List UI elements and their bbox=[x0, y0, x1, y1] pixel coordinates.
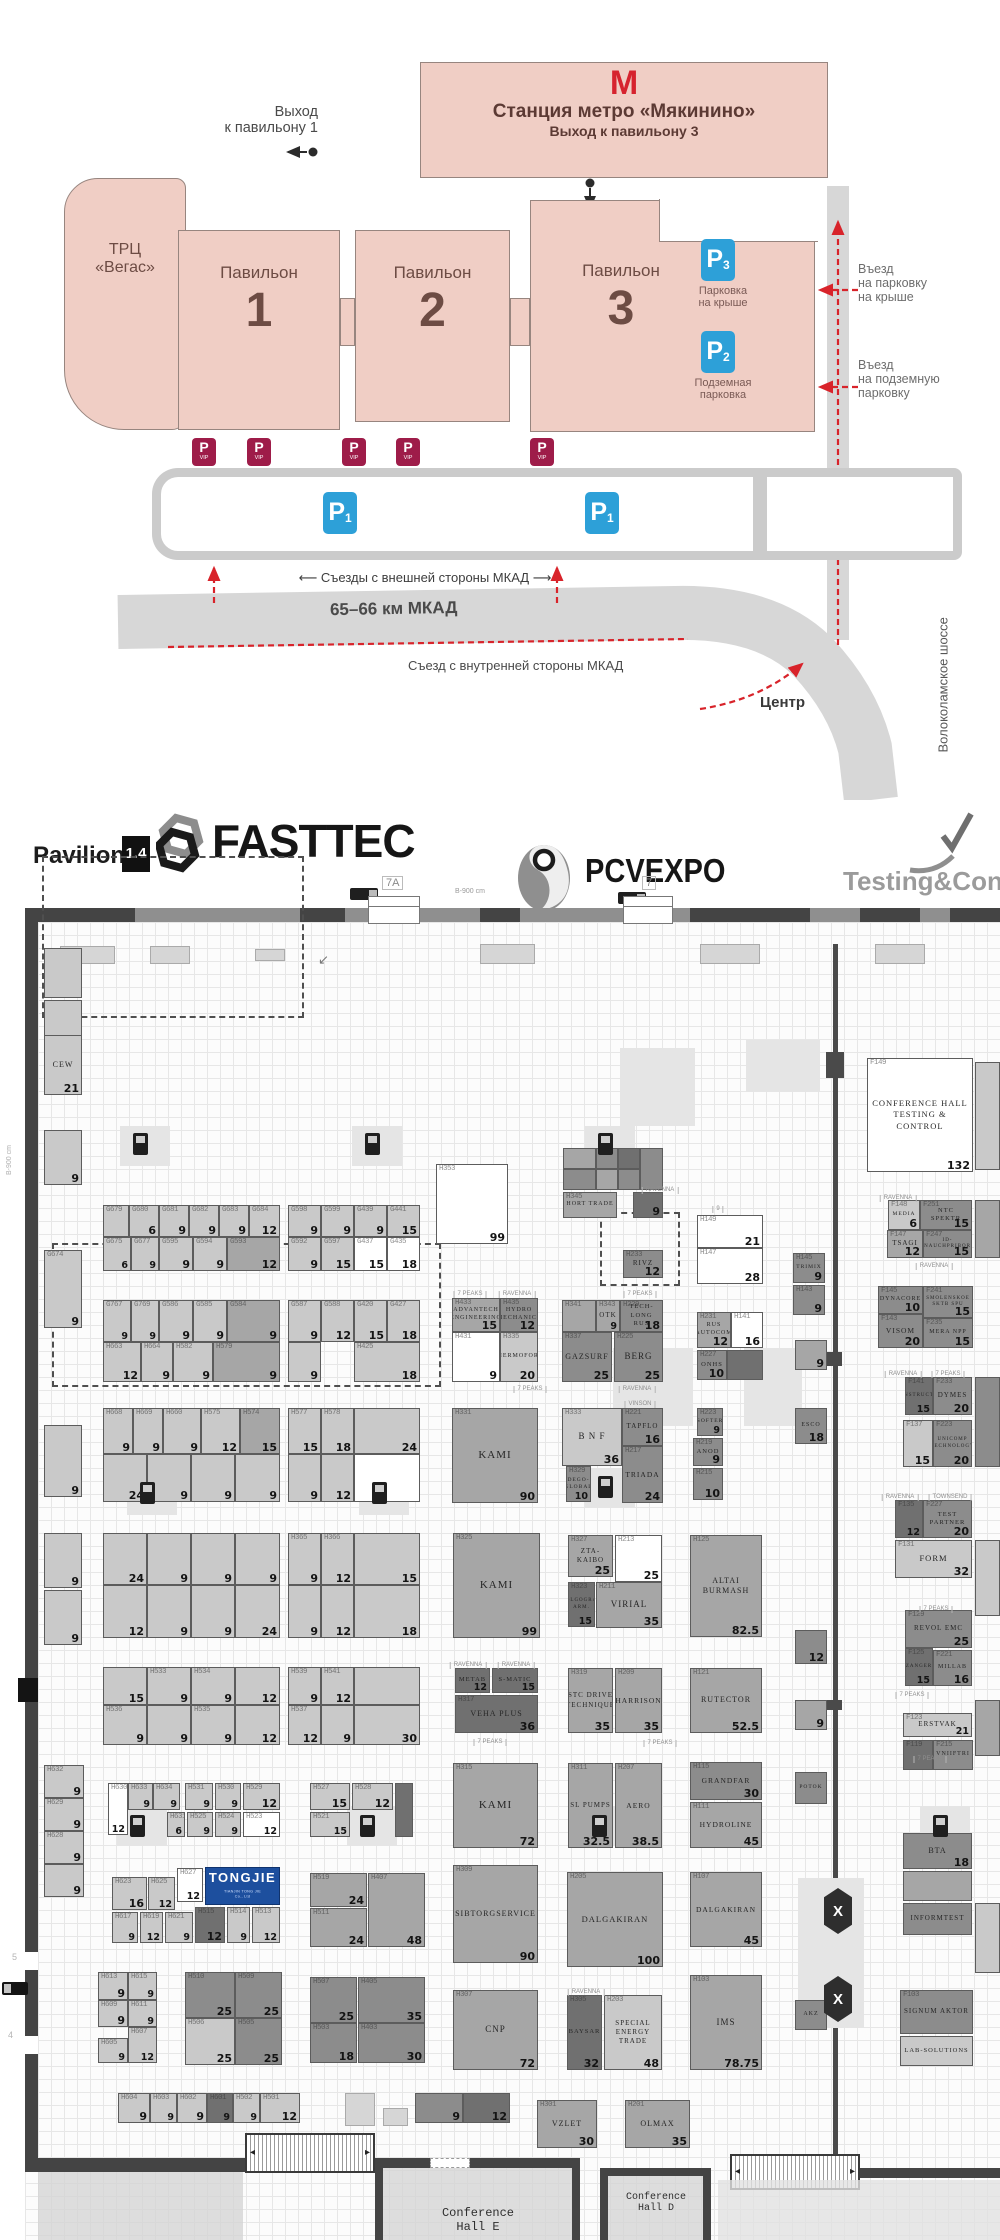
forklift-icon bbox=[598, 1476, 613, 1498]
booth-H103: H103IMS78.75 bbox=[690, 1975, 762, 2070]
booth-F143: F143VISOM20 bbox=[878, 1314, 923, 1348]
booth-G769: G7699 bbox=[131, 1300, 159, 1342]
booth-H141: H14116 bbox=[731, 1312, 763, 1348]
booth: 9 bbox=[321, 1705, 354, 1745]
forklift-icon bbox=[372, 1482, 387, 1504]
booth: METAB12 bbox=[455, 1668, 490, 1693]
booth-H223: H223SOFTER9 bbox=[697, 1408, 723, 1436]
forklift-icon bbox=[360, 1815, 375, 1837]
booth-H365: H3659 bbox=[288, 1533, 321, 1585]
booth: 9 bbox=[415, 2093, 463, 2123]
booth: 9 bbox=[44, 1533, 82, 1588]
booth-H143: H1439 bbox=[793, 1285, 825, 1315]
booth-H533: H5339 bbox=[147, 1667, 191, 1705]
booth bbox=[618, 1169, 640, 1190]
aisle-label: RAVENNA bbox=[499, 1291, 536, 1298]
booth-G420: G42015 bbox=[354, 1300, 387, 1342]
booth-H530: H5309 bbox=[215, 1783, 241, 1810]
booth-G684: G68412 bbox=[249, 1205, 280, 1237]
booth-G441: G44115 bbox=[387, 1205, 420, 1237]
aisle-label: RAVENNA bbox=[498, 1662, 535, 1669]
booth-H519: H51924 bbox=[310, 1873, 367, 1907]
booth-H615: H6159 bbox=[128, 1972, 157, 2000]
booth: 9 bbox=[147, 1585, 191, 1638]
booth: 9 bbox=[795, 1700, 827, 1730]
booth: ESCO18 bbox=[795, 1408, 827, 1444]
booth-H537: H53712 bbox=[288, 1705, 321, 1745]
booth-H578: H57818 bbox=[321, 1408, 354, 1454]
booth bbox=[903, 1871, 972, 1901]
deco-block bbox=[345, 2093, 375, 2126]
booth: LAB-SOLUTIONS bbox=[900, 2036, 973, 2066]
booth-H323: H323VOLGOGRAD ARM.15 bbox=[568, 1582, 595, 1627]
booth-H337: H337GAZSURF25 bbox=[562, 1332, 612, 1382]
deco-block bbox=[255, 949, 285, 961]
deco-block bbox=[150, 946, 190, 964]
booth-H529: H52912 bbox=[243, 1783, 280, 1810]
booth-G584: G5849 bbox=[227, 1300, 280, 1342]
booth: 9 bbox=[795, 1340, 827, 1370]
booth-H669: H6699 bbox=[133, 1408, 163, 1454]
booth-H229: H229TECH-LONG RUS18 bbox=[620, 1300, 663, 1332]
booth-H621: H6219 bbox=[165, 1912, 193, 1943]
booth bbox=[975, 1377, 1000, 1467]
booth bbox=[727, 1350, 763, 1380]
booth-H575: H57512 bbox=[201, 1408, 240, 1454]
booth-H149: H14921 bbox=[697, 1215, 763, 1248]
booth-F235: F235MERA NPP15 bbox=[923, 1318, 973, 1348]
booth-H213: H21325 bbox=[615, 1535, 662, 1582]
booth-H307: H307CNP72 bbox=[453, 1990, 538, 2070]
booth-H539: H5399 bbox=[288, 1667, 321, 1705]
booth-H107: H107DALGAKIRAN45 bbox=[690, 1872, 762, 1947]
booth-F221: F221MILLAB16 bbox=[933, 1650, 972, 1686]
forklift-icon bbox=[140, 1482, 155, 1504]
aisle-label: RAVENNA bbox=[916, 1263, 953, 1270]
booth-H629: H6299 bbox=[44, 1798, 84, 1831]
booth-H601: H6019 bbox=[207, 2093, 233, 2123]
booth: 9 bbox=[235, 1533, 280, 1585]
booth-H435: H435HYDRO MECHANICS12 bbox=[500, 1298, 538, 1332]
booth bbox=[596, 1169, 618, 1190]
booth-H633: H6339 bbox=[128, 1783, 153, 1810]
booth-H207: H207AERO38.5 bbox=[615, 1763, 662, 1848]
booth: BTA18 bbox=[903, 1833, 972, 1869]
booth-H506: H50625 bbox=[185, 2018, 235, 2065]
booth-G767: G7679 bbox=[103, 1300, 131, 1342]
booth: 12 bbox=[235, 1705, 280, 1745]
booth-H609: H6099 bbox=[98, 2000, 128, 2027]
booth-H231: H231RUS AUTOCOM12 bbox=[697, 1312, 731, 1348]
booth-H301: H301VZLET30 bbox=[537, 2100, 597, 2148]
booth-F148: F148MEDIA6 bbox=[888, 1200, 920, 1230]
booth-H579: H5799 bbox=[213, 1342, 280, 1382]
booth-G594: G5949 bbox=[193, 1237, 227, 1271]
booth-H325: H325KAMI99 bbox=[453, 1533, 540, 1638]
booth-G597: G59715 bbox=[321, 1237, 354, 1271]
booth bbox=[975, 1700, 1000, 1756]
booth-H403: H40330 bbox=[358, 2023, 425, 2063]
booth-F135: F13512 bbox=[895, 1500, 923, 1538]
booth: 15 bbox=[103, 1667, 147, 1705]
booth-H660: H6609 bbox=[163, 1408, 201, 1454]
booth-G593: G59312 bbox=[227, 1237, 280, 1271]
booth-H203: H203SPECIAL ENERGY TRADE48 bbox=[604, 1995, 662, 2070]
booth: 9 bbox=[191, 1585, 235, 1638]
booth-H524: H5249 bbox=[215, 1812, 241, 1837]
booth-H607: H60712 bbox=[128, 2027, 157, 2063]
forklift-icon bbox=[933, 1815, 948, 1837]
booths-layer: H35399H345HORT TRADE9H433ADVANTECH ENGIN… bbox=[0, 0, 1000, 2240]
booth-H577: H57715 bbox=[288, 1408, 321, 1454]
booth-F223: F223UNICOMP TECHNOLOGY20 bbox=[933, 1420, 972, 1467]
booth-G586: G5869 bbox=[159, 1300, 193, 1342]
booth-F119: F119 bbox=[903, 1740, 933, 1770]
booth: 12 bbox=[321, 1454, 354, 1502]
booth-H630: H63012 bbox=[108, 1783, 128, 1835]
booth-H233: H233RIVZ12 bbox=[623, 1250, 663, 1278]
booth-H115: H115GRANDFAR30 bbox=[690, 1762, 762, 1800]
booth: 12 bbox=[321, 1585, 354, 1638]
booth-G677: G6779 bbox=[131, 1237, 159, 1271]
booth bbox=[354, 1667, 420, 1705]
aisle-label: RAVENNA bbox=[450, 1662, 487, 1669]
booth-H611: H6119 bbox=[128, 2000, 157, 2027]
aisle-label: RAVENNA bbox=[885, 1371, 922, 1378]
booth-H663: H66312 bbox=[103, 1342, 141, 1382]
booth-H305: H305BAYSAR32 bbox=[567, 1995, 602, 2070]
forklift-icon bbox=[130, 1815, 145, 1837]
booth-G439: G4399 bbox=[354, 1205, 387, 1237]
booth-H503: H50318 bbox=[310, 2023, 357, 2063]
booth-F147: F147TSAGI12 bbox=[887, 1230, 923, 1258]
booth-H521: H52115 bbox=[310, 1812, 350, 1837]
booth-H509: H50925 bbox=[235, 1972, 282, 2018]
aisle-label: VINSON bbox=[624, 1401, 655, 1408]
booth-H604: H6049 bbox=[118, 2093, 150, 2123]
booth: 12 bbox=[463, 2093, 510, 2123]
booth: 30 bbox=[354, 1705, 420, 1745]
booth: INFORMTEST bbox=[903, 1903, 972, 1935]
booth: 12 bbox=[103, 1585, 147, 1638]
forklift-icon bbox=[133, 1133, 148, 1155]
booth-H627: H62712 bbox=[177, 1868, 203, 1902]
booth-H335: H335THERMOFORM20 bbox=[500, 1332, 538, 1382]
booth: 9 bbox=[235, 1454, 280, 1502]
booth-H514: H5149 bbox=[227, 1907, 250, 1943]
booth: S-MATIC15 bbox=[492, 1668, 538, 1693]
booth-G674: G6749 bbox=[44, 1250, 82, 1328]
booth-H407: H40748 bbox=[368, 1873, 425, 1947]
booth-H505: H50525 bbox=[235, 2018, 282, 2065]
aisle-label: 7 PEAKS bbox=[473, 1739, 506, 1746]
booth-F149: F149CONFERENCE HALL TESTING & CONTROL132 bbox=[867, 1058, 973, 1172]
booth: TONGJIETIANJIN TONG JIE Co., Ltd bbox=[205, 1867, 280, 1905]
booth-F103: F103SIGNUM AKTOR bbox=[900, 1990, 973, 2034]
booth-F125: F125ZANGER15 bbox=[905, 1648, 933, 1686]
booth-H345: H345HORT TRADE bbox=[563, 1192, 617, 1218]
booth: CEW21 bbox=[44, 1035, 82, 1095]
aisle-label: TOWNSEND bbox=[929, 1494, 972, 1501]
booth bbox=[563, 1148, 596, 1169]
booth-H217: H217TRIADA24 bbox=[622, 1446, 663, 1503]
booth-H331: H331KAMI90 bbox=[452, 1408, 538, 1503]
booth-H510: H51025 bbox=[185, 1972, 235, 2018]
booth-H366: H36612 bbox=[321, 1533, 354, 1585]
booth-H603: H6039 bbox=[150, 2093, 177, 2123]
booth-H531: H5319 bbox=[185, 1783, 213, 1810]
booth-H317: H317VEHA PLUS36 bbox=[455, 1695, 538, 1733]
escalator-icon: X bbox=[824, 1888, 852, 1934]
booth-G682: G6829 bbox=[189, 1205, 219, 1237]
booth-H602: H6029 bbox=[177, 2093, 207, 2123]
booth: 9 bbox=[191, 1454, 235, 1502]
booth-H574: H57415 bbox=[240, 1408, 280, 1454]
booth-H525: H5259 bbox=[187, 1812, 213, 1837]
booth-H507: H50725 bbox=[310, 1977, 357, 2023]
booth-H632: H6329 bbox=[44, 1765, 84, 1798]
booth-H201: H201OLMAX35 bbox=[625, 2100, 690, 2148]
booth-G595: G5959 bbox=[159, 1237, 193, 1271]
aisle-label: RAVENNA bbox=[642, 1187, 679, 1194]
booth-H225: H225BERG25 bbox=[614, 1332, 663, 1382]
booth-H319: H319STC DRIVE TECHNIQUE35 bbox=[568, 1668, 613, 1733]
aisle-label: 7 PEAKS bbox=[453, 1291, 486, 1298]
aisle-label: 7 PEAKS bbox=[913, 1756, 946, 1763]
booth: POTOK bbox=[795, 1772, 827, 1804]
booth-H664: H6649 bbox=[141, 1342, 173, 1382]
booth-H527: H52715 bbox=[310, 1783, 350, 1810]
booth bbox=[618, 1148, 640, 1169]
booth-H353: H35399 bbox=[436, 1164, 508, 1244]
booth-H511: H51124 bbox=[310, 1908, 367, 1947]
booth-H343: H343OTK9 bbox=[596, 1300, 620, 1332]
booth-H329: H329DEGO-GLOBAL10 bbox=[566, 1466, 591, 1502]
aisle-label: RAVENNA bbox=[568, 1989, 605, 1996]
forklift-icon bbox=[365, 1133, 380, 1155]
booth-F227: F227TEST PARTNER20 bbox=[923, 1500, 972, 1538]
booth-H147: H14728 bbox=[697, 1248, 763, 1284]
booth-H121: H121RUTECTOR52.5 bbox=[690, 1668, 762, 1733]
booth-H333: H333B N F36 bbox=[562, 1408, 622, 1466]
booth: 9 bbox=[288, 1342, 321, 1382]
booth: 9 bbox=[147, 1533, 191, 1585]
booth-H502: H5029 bbox=[233, 2093, 260, 2123]
booth-H513: H51312 bbox=[252, 1907, 280, 1943]
booth-H227: H227ONHS10 bbox=[697, 1350, 727, 1380]
booth-H631: H6316 bbox=[167, 1812, 185, 1837]
booth-H327: H327ZTA-KAIBO25 bbox=[568, 1535, 613, 1577]
booth bbox=[975, 1062, 1000, 1170]
booth-F251: F251NTC SPEKTR15 bbox=[920, 1200, 972, 1230]
booth-G683: G6839 bbox=[219, 1205, 249, 1237]
booth-H125: H125ALTAI BURMASH82.5 bbox=[690, 1535, 762, 1637]
booth-G587: G5879 bbox=[288, 1300, 321, 1342]
booth-H634: H6349 bbox=[153, 1783, 180, 1810]
booth-G675: G6756 bbox=[103, 1237, 131, 1271]
booth: 24 bbox=[354, 1408, 420, 1454]
booth-H405: H40535 bbox=[358, 1977, 425, 2023]
forklift-icon bbox=[592, 1815, 607, 1837]
booth-H582: H5829 bbox=[173, 1342, 213, 1382]
booth-H613: H6139 bbox=[98, 1972, 128, 2000]
aisle-label: RAVENNA bbox=[882, 1494, 919, 1501]
booth-H536: H5369 bbox=[103, 1705, 147, 1745]
booth-H145: H145TRIMIX9 bbox=[793, 1253, 825, 1283]
booth: 24 bbox=[235, 1585, 280, 1638]
aisle-label: 7 PEAKS bbox=[513, 1386, 546, 1393]
booth bbox=[354, 1454, 420, 1502]
booth-H628: H6289 bbox=[44, 1831, 84, 1864]
booth-H209: H209HARRISON35 bbox=[615, 1668, 662, 1733]
booth-H431: H4319 bbox=[452, 1332, 500, 1382]
booth: 24 bbox=[103, 1533, 147, 1585]
booth bbox=[395, 1783, 413, 1837]
booth-F123: F123ERSTVAK21 bbox=[903, 1713, 972, 1737]
booth-H523: H52312 bbox=[243, 1812, 280, 1837]
booth: 15 bbox=[354, 1533, 420, 1585]
booth-G680: G6806 bbox=[129, 1205, 159, 1237]
deco-block bbox=[700, 944, 760, 964]
booth bbox=[640, 1148, 663, 1190]
booth-G437: G43715 bbox=[354, 1237, 387, 1271]
booth-H501: H50112 bbox=[260, 2093, 300, 2123]
booth: 9 bbox=[288, 1585, 321, 1638]
booth-F129: F129REVOL EMC25 bbox=[905, 1610, 972, 1648]
booth-G592: G5929 bbox=[288, 1237, 321, 1271]
booth-H534: H5349 bbox=[191, 1667, 235, 1705]
booth-H111: H111HYDROLINE45 bbox=[690, 1802, 762, 1848]
booth-H515: H51512 bbox=[195, 1907, 225, 1943]
booth-G681: G6819 bbox=[159, 1205, 189, 1237]
booth: 9 bbox=[44, 1590, 82, 1645]
booth-H668: H6689 bbox=[103, 1408, 133, 1454]
booth: 9 bbox=[288, 1454, 321, 1502]
booth-H541: H54112 bbox=[321, 1667, 354, 1705]
aisle-label: 7 PEAKS bbox=[895, 1692, 928, 1699]
booth-F131: F131FORM32 bbox=[895, 1540, 972, 1578]
deco-block bbox=[383, 2108, 408, 2126]
booth-F215: F215VNIIFTRI bbox=[933, 1740, 973, 1770]
page: Выход к павильону 1 М Станция метро «Мяк… bbox=[0, 0, 1000, 2240]
booth bbox=[563, 1169, 596, 1190]
booth bbox=[975, 1903, 1000, 1973]
booth-H309: H309SIBTORGSERVICE90 bbox=[453, 1865, 538, 1963]
booth-G679: G679 bbox=[103, 1205, 129, 1237]
booth-H215: H21510 bbox=[693, 1468, 723, 1500]
booth: 18 bbox=[354, 1585, 420, 1638]
deco-block bbox=[480, 944, 535, 964]
booth bbox=[975, 1200, 1000, 1258]
aisle-label: RAVENNA bbox=[619, 1386, 656, 1393]
booth-G435: G43518 bbox=[387, 1237, 420, 1271]
shaft bbox=[620, 1048, 695, 1126]
booth-H315: H315KAMI72 bbox=[453, 1763, 538, 1848]
booth-H433: H433ADVANTECH ENGINEERING15 bbox=[452, 1298, 500, 1332]
booth: 9 bbox=[44, 1425, 82, 1497]
booth-H425: H42518 bbox=[354, 1342, 420, 1382]
booth-H605: H6059 bbox=[98, 2038, 128, 2063]
booth: 12 bbox=[795, 1630, 827, 1664]
booth-F141: F141CONSTRUCTOR15 bbox=[905, 1377, 933, 1415]
aisle-label: 7 PEAKS bbox=[623, 1291, 656, 1298]
booth-G599: G5999 bbox=[321, 1205, 354, 1237]
booth-G588: G58812 bbox=[321, 1300, 354, 1342]
booth-H219: H219ANOD9 bbox=[693, 1438, 723, 1466]
booth-H535: H5359 bbox=[191, 1705, 235, 1745]
booth: 9 bbox=[44, 1864, 84, 1897]
booth bbox=[975, 1540, 1000, 1616]
booth: 12 bbox=[235, 1667, 280, 1705]
booth-H617: H6179 bbox=[112, 1912, 138, 1943]
booth-H625: H62512 bbox=[148, 1877, 175, 1910]
booth: 9 bbox=[191, 1533, 235, 1585]
aisle-label: 7 PEAKS bbox=[919, 1606, 952, 1613]
booth bbox=[44, 948, 82, 998]
booth-F247: F247ID-NAUCHPRIBOR15 bbox=[923, 1230, 972, 1258]
booth-G427: G42718 bbox=[387, 1300, 420, 1342]
booth-F241: F241SMOLENSKOE SKTB SPU15 bbox=[923, 1286, 973, 1318]
booth: AKZ bbox=[795, 2000, 827, 2030]
booth-H623: H62316 bbox=[112, 1877, 147, 1910]
truck-icon bbox=[2, 1982, 28, 1995]
escalator-icon: X bbox=[824, 1976, 852, 2022]
booth-F145: F145DYNACORE10 bbox=[878, 1286, 923, 1314]
booth-H619: H61912 bbox=[140, 1912, 163, 1943]
booth-H341: H341 bbox=[562, 1300, 596, 1332]
deco-block bbox=[875, 944, 925, 964]
booth: 9 bbox=[633, 1192, 663, 1218]
booth-F233: F233DYMES20 bbox=[933, 1377, 972, 1415]
forklift-icon bbox=[598, 1133, 613, 1155]
shaft bbox=[746, 1040, 820, 1092]
booth-H205: H205DALGAKIRAN100 bbox=[567, 1872, 663, 1967]
aisle-label: 7 PEAKS bbox=[931, 1371, 964, 1378]
booth-H528: H52812 bbox=[352, 1783, 393, 1810]
booth: 9 bbox=[44, 1130, 82, 1185]
booth-F137: F13715 bbox=[903, 1420, 933, 1467]
booth-G598: G5989 bbox=[288, 1205, 321, 1237]
aisle-label: 9 bbox=[712, 1206, 723, 1213]
booth-H221: H221TAPFLO16 bbox=[622, 1408, 663, 1446]
booth-G585: G5859 bbox=[193, 1300, 227, 1342]
aisle-label: 7 PEAKS bbox=[643, 1740, 676, 1747]
booth: 9 bbox=[147, 1705, 191, 1745]
aisle-label: RAVENNA bbox=[880, 1195, 917, 1202]
booth-H211: H211VIRIAL35 bbox=[596, 1582, 662, 1628]
